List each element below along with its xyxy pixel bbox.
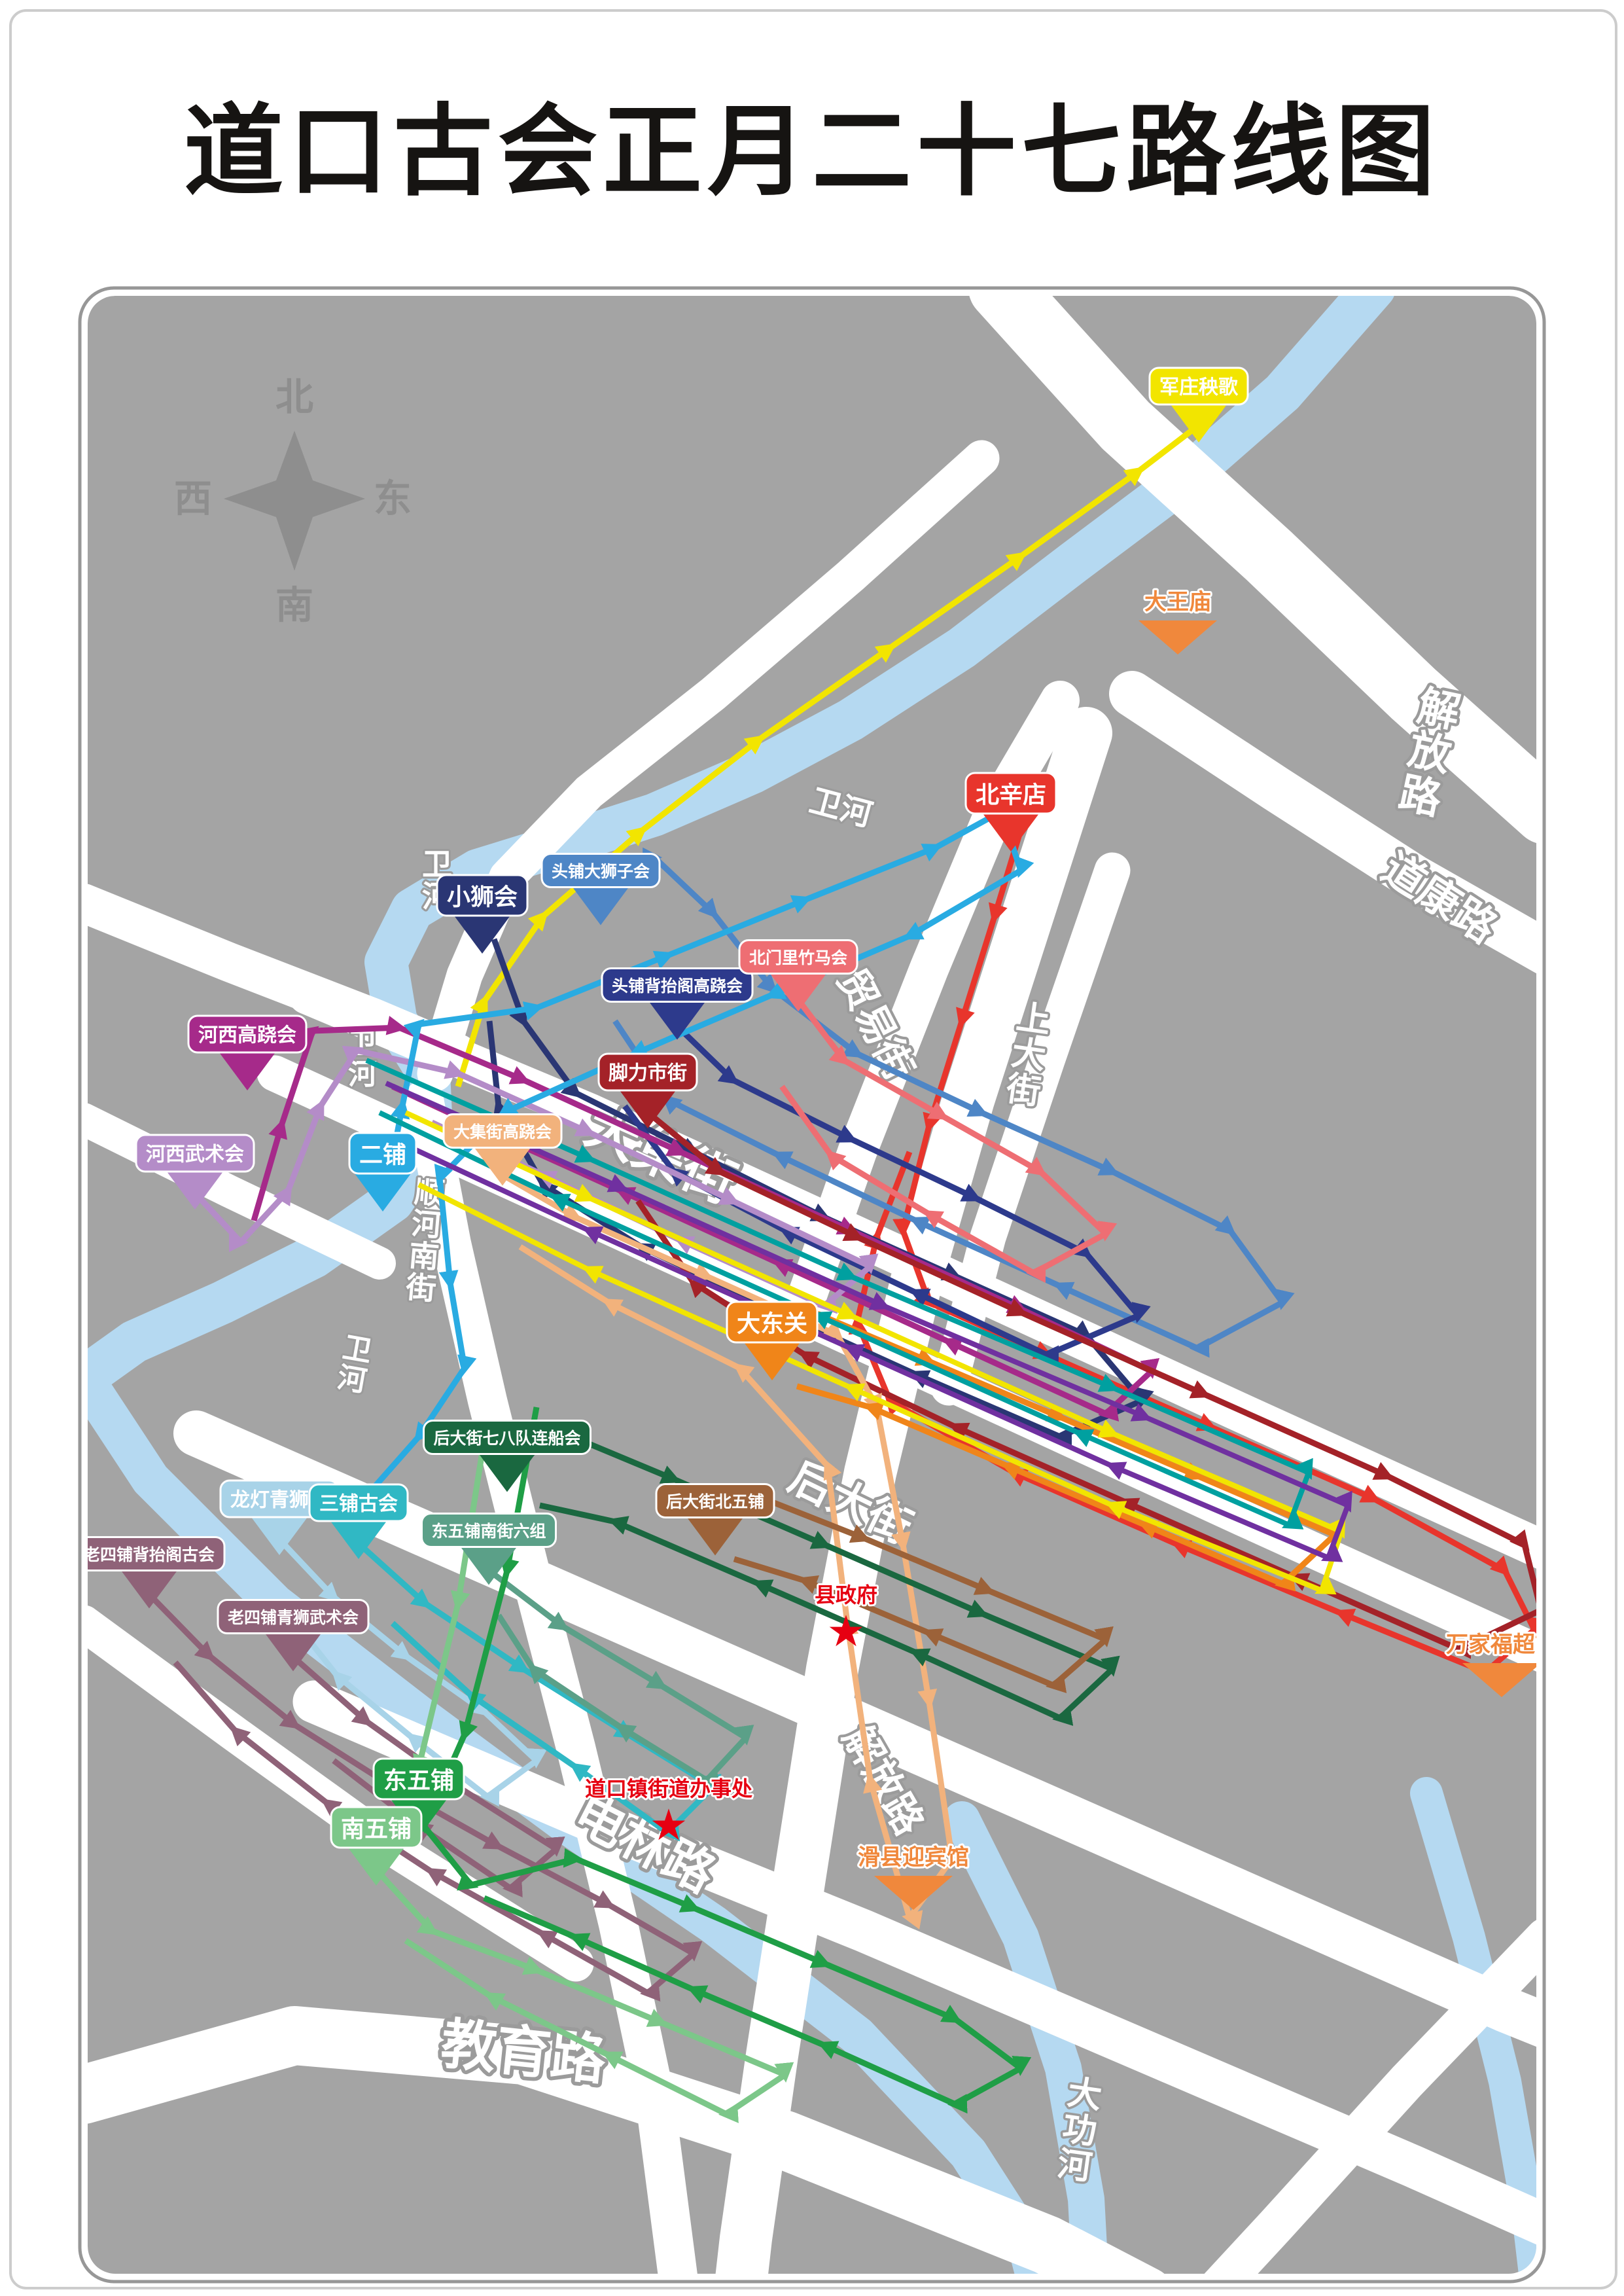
star-icon: ★ [649,1801,688,1849]
star-icon: ★ [826,1607,865,1655]
compass-label-north: 北 [275,376,313,419]
svg-text:头铺背抬阁高跷会: 头铺背抬阁高跷会 [612,977,743,996]
svg-text:老四铺青狮武术会: 老四铺青狮武术会 [228,1609,359,1627]
svg-text:头铺大狮子会: 头铺大狮子会 [552,863,650,881]
svg-text:北门里竹马会: 北门里竹马会 [749,948,847,967]
svg-text:老四铺背抬阁古会: 老四铺背抬阁古会 [84,1545,215,1564]
svg-text:南: 南 [408,1238,440,1274]
svg-text:大王庙: 大王庙 [1144,590,1211,615]
map-canvas: 解放路道康路贸易街上大街解放路顺河南街大集街后大街电林路教育路大功河卫河卫河卫河… [74,288,1557,2296]
svg-text:河西武术会: 河西武术会 [146,1144,244,1166]
svg-text:小狮会: 小狮会 [447,884,518,910]
svg-text:北辛店: 北辛店 [976,781,1046,808]
svg-text:军庄秧歌: 军庄秧歌 [1159,376,1239,399]
svg-text:后大街北五铺: 后大街北五铺 [666,1492,764,1511]
svg-text:东五铺: 东五铺 [383,1767,454,1794]
svg-text:脚力市街: 脚力市街 [609,1062,687,1085]
svg-text:三铺古会: 三铺古会 [319,1494,398,1515]
svg-text:河: 河 [335,1361,369,1398]
svg-text:河: 河 [410,1206,443,1243]
poster-page: 道口古会正月二十七路线图 解放路道康路贸易街上大街解放路顺河南街大集街后大街电林… [0,0,1624,2296]
svg-text:河: 河 [1055,2145,1095,2187]
svg-text:大东关: 大东关 [737,1310,807,1337]
svg-text:万家福超市: 万家福超市 [1446,1632,1557,1657]
compass-label-east: 东 [374,478,412,520]
svg-text:道口镇街道办事处: 道口镇街道办事处 [585,1777,752,1801]
svg-text:街: 街 [404,1270,437,1306]
compass-label-west: 西 [174,478,212,520]
compass-label-south: 南 [275,584,313,627]
svg-text:大集街高跷会: 大集街高跷会 [453,1122,552,1141]
svg-text:滑县迎宾馆: 滑县迎宾馆 [858,1845,969,1870]
svg-text:二铺: 二铺 [359,1141,406,1168]
svg-text:县政府: 县政府 [815,1583,877,1607]
route-map: 解放路道康路贸易街上大街解放路顺河南街大集街后大街电林路教育路大功河卫河卫河卫河… [0,0,1624,2296]
svg-text:南五铺: 南五铺 [341,1816,412,1842]
svg-text:东五铺南街六组: 东五铺南街六组 [431,1522,546,1541]
svg-text:河西高跷会: 河西高跷会 [198,1025,296,1047]
svg-text:后大街七八队连船会: 后大街七八队连船会 [433,1429,580,1448]
svg-text:街: 街 [1004,1069,1044,1112]
